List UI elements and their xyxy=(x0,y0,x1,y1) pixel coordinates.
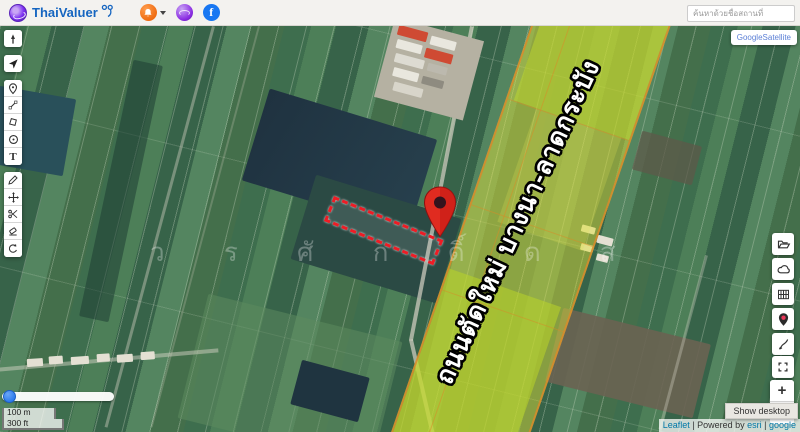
toolbar-edit xyxy=(4,172,22,257)
draw-pen-button[interactable] xyxy=(772,333,794,355)
notification-bell-icon[interactable] xyxy=(140,4,157,21)
street-view-button[interactable] xyxy=(772,283,794,305)
purple-app-icon[interactable] xyxy=(176,4,193,21)
poi-marker-button[interactable] xyxy=(772,308,794,330)
toolbar-north xyxy=(4,30,22,47)
draw-circle-button[interactable] xyxy=(4,131,22,148)
top-bar: ThaiValuer f xyxy=(0,0,800,26)
attribution-bar: Leaflet | Powered by esri | google xyxy=(659,419,800,432)
show-desktop-tooltip: Show desktop xyxy=(725,403,798,419)
esri-link[interactable]: esri xyxy=(747,420,762,430)
opacity-slider[interactable] xyxy=(2,392,114,401)
open-folder-button[interactable] xyxy=(772,233,794,255)
cloud-download-button[interactable] xyxy=(772,258,794,280)
draw-polyline-button[interactable] xyxy=(4,97,22,114)
thaivaluer-app: ThaiValuer f xyxy=(0,0,800,432)
toolbar-locate xyxy=(4,55,22,72)
toolbar-draw: T xyxy=(4,80,22,165)
scale-control: 100 m 300 ft xyxy=(2,408,64,430)
google-link[interactable]: google xyxy=(769,420,796,430)
base-layer-toggle[interactable]: GoogleSatellite xyxy=(731,30,797,45)
search-container xyxy=(687,3,795,22)
zoom-in-button[interactable]: + xyxy=(770,380,794,402)
add-marker-button[interactable] xyxy=(4,80,22,97)
search-input[interactable] xyxy=(687,5,795,22)
add-text-button[interactable]: T xyxy=(4,148,22,165)
cut-layers-button[interactable] xyxy=(4,206,22,223)
rotate-layers-button[interactable] xyxy=(4,240,22,257)
fullscreen-button[interactable] xyxy=(772,356,794,378)
north-arrow-button[interactable] xyxy=(4,30,22,47)
locate-button[interactable] xyxy=(4,55,22,72)
slider-knob[interactable] xyxy=(3,390,16,403)
facebook-icon[interactable]: f xyxy=(203,4,220,21)
edit-layers-button[interactable] xyxy=(4,172,22,189)
erase-layers-button[interactable] xyxy=(4,223,22,240)
draw-polygon-button[interactable] xyxy=(4,114,22,131)
scale-imperial: 300 ft xyxy=(2,419,64,430)
dropdown-caret-icon[interactable] xyxy=(160,11,166,15)
map-marker-pin[interactable] xyxy=(420,184,460,240)
brand-flourish-icon xyxy=(101,4,114,18)
brand-title: ThaiValuer xyxy=(32,5,98,20)
thaivaluer-logo-icon[interactable] xyxy=(9,4,27,22)
leaflet-link[interactable]: Leaflet xyxy=(663,420,690,430)
map-canvas[interactable]: ว ร ศั ก ดิ์ ด ส ถนนตัดใหม่ บางนา-ลาดกระ… xyxy=(0,26,800,432)
drag-layers-button[interactable] xyxy=(4,189,22,206)
